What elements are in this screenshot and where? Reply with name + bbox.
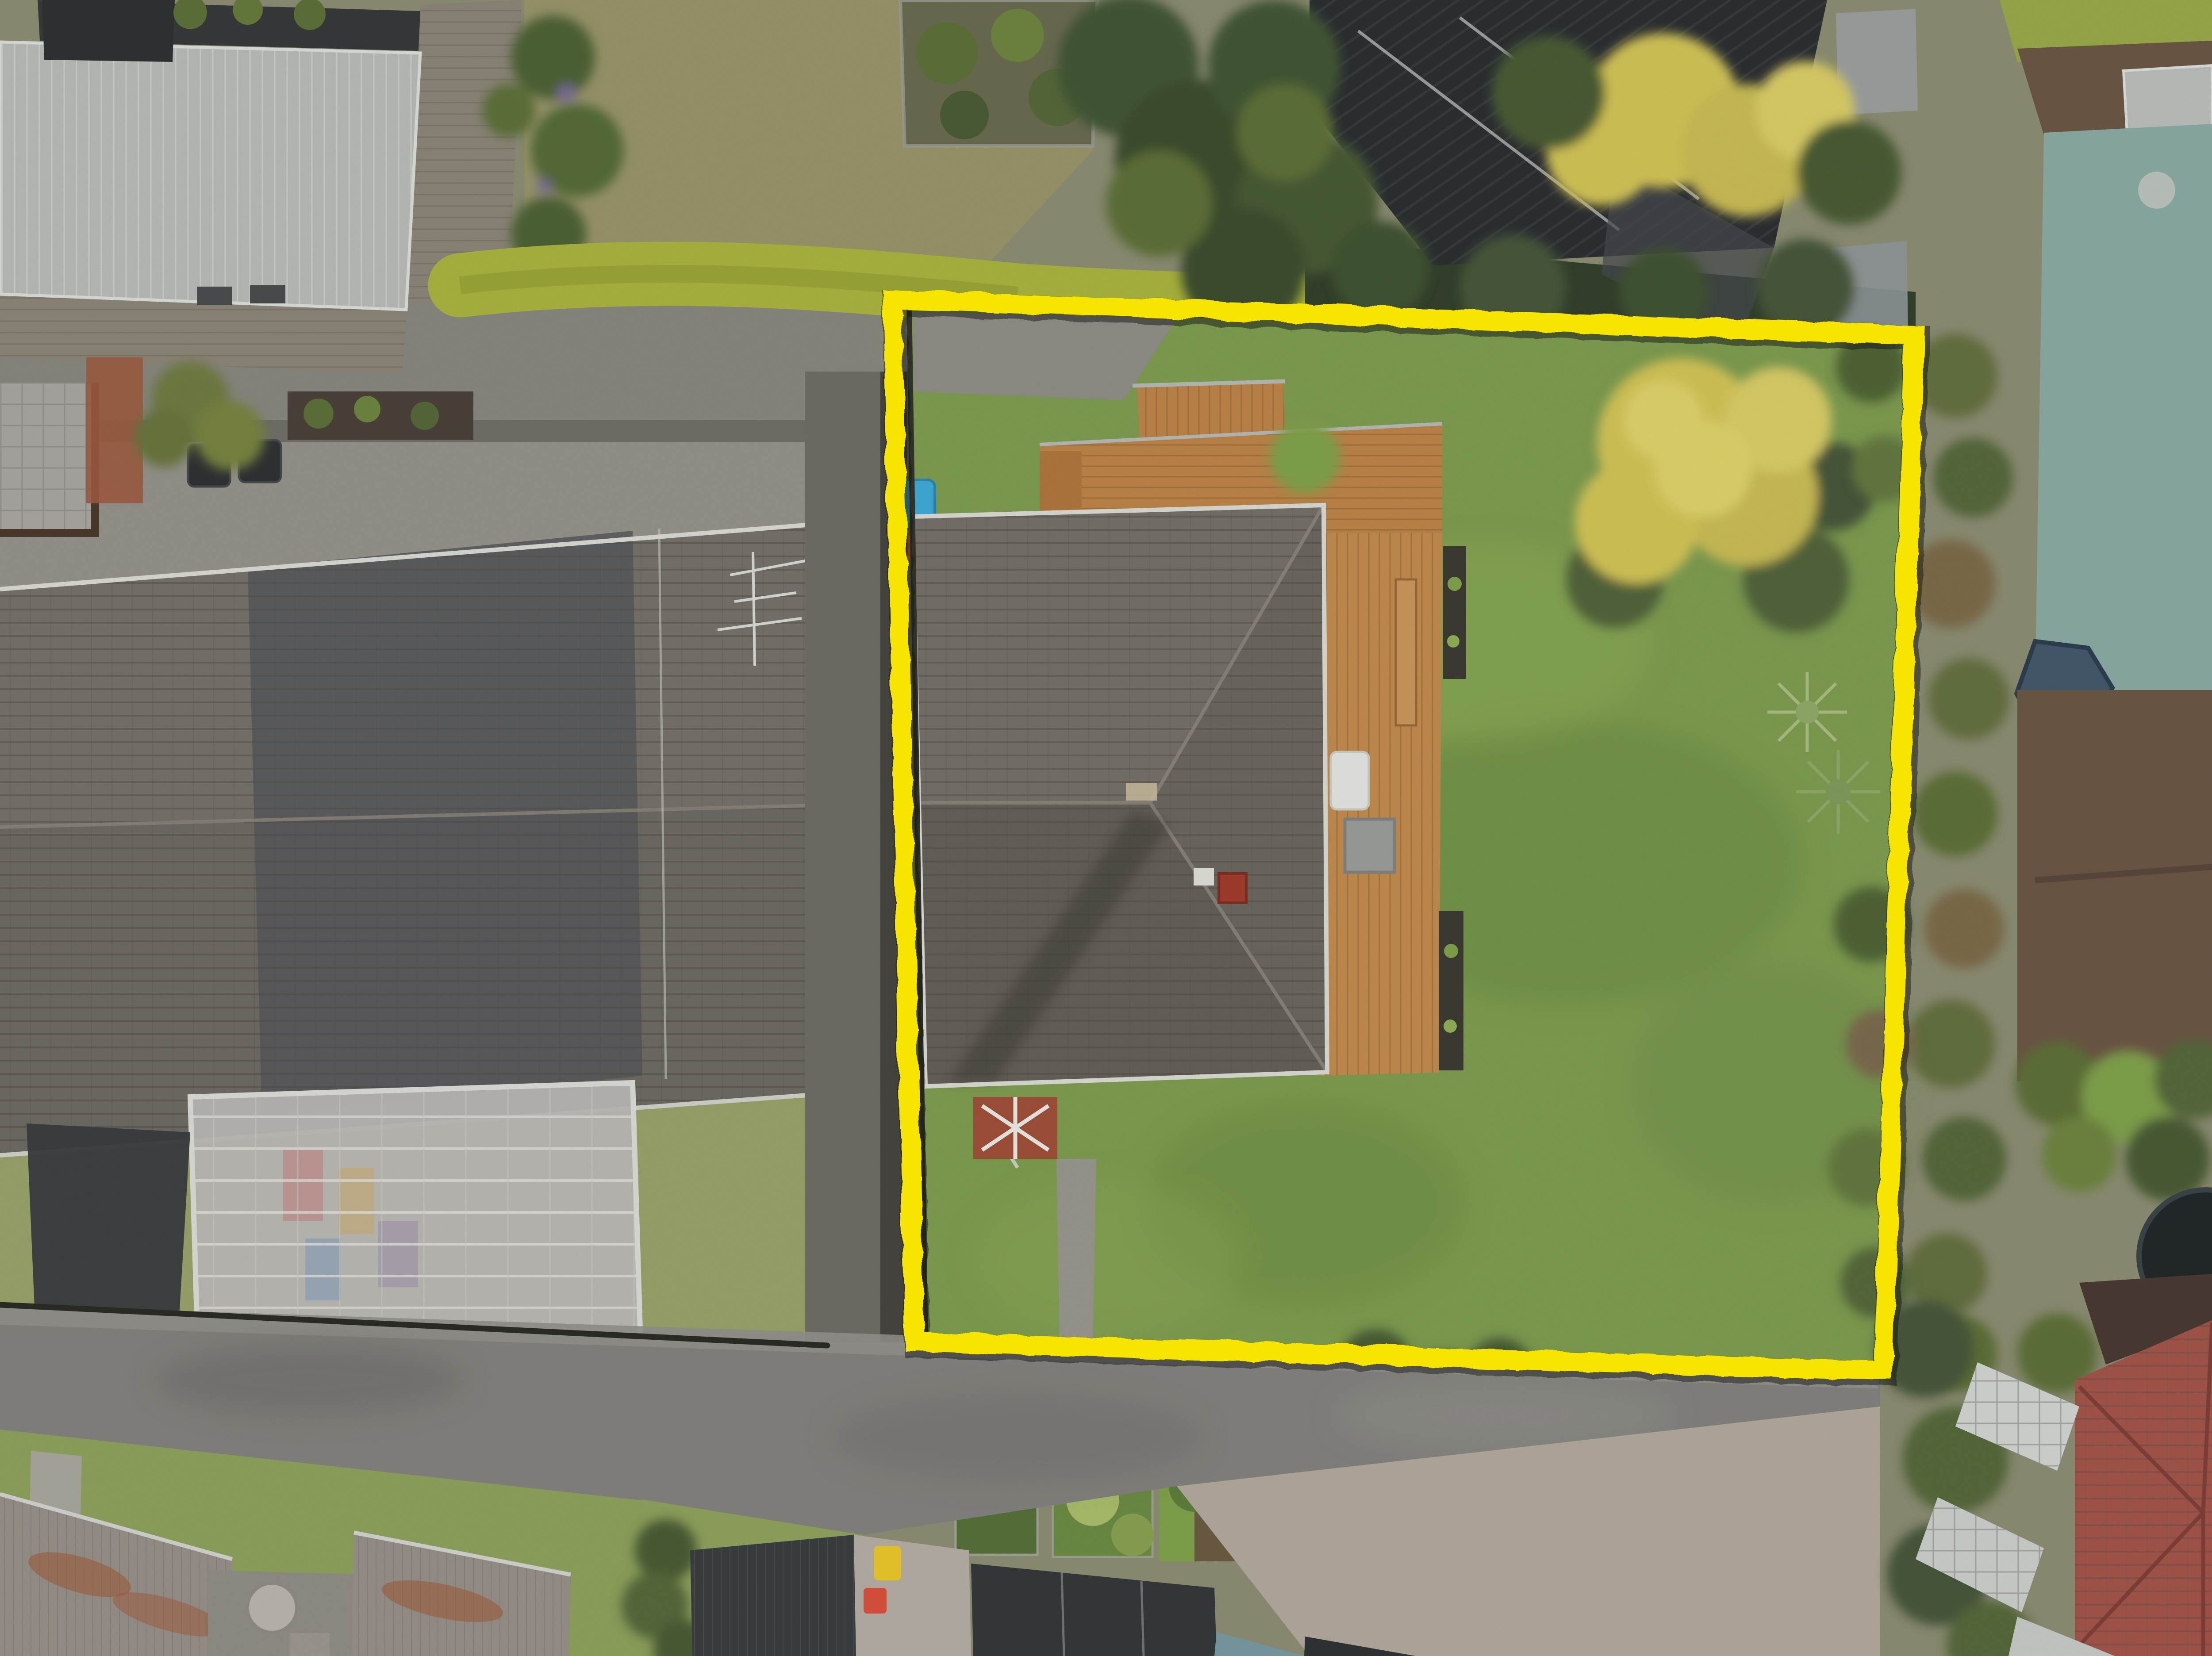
photo-grain [0, 0, 2212, 1656]
aerial-photo [0, 0, 2212, 1656]
